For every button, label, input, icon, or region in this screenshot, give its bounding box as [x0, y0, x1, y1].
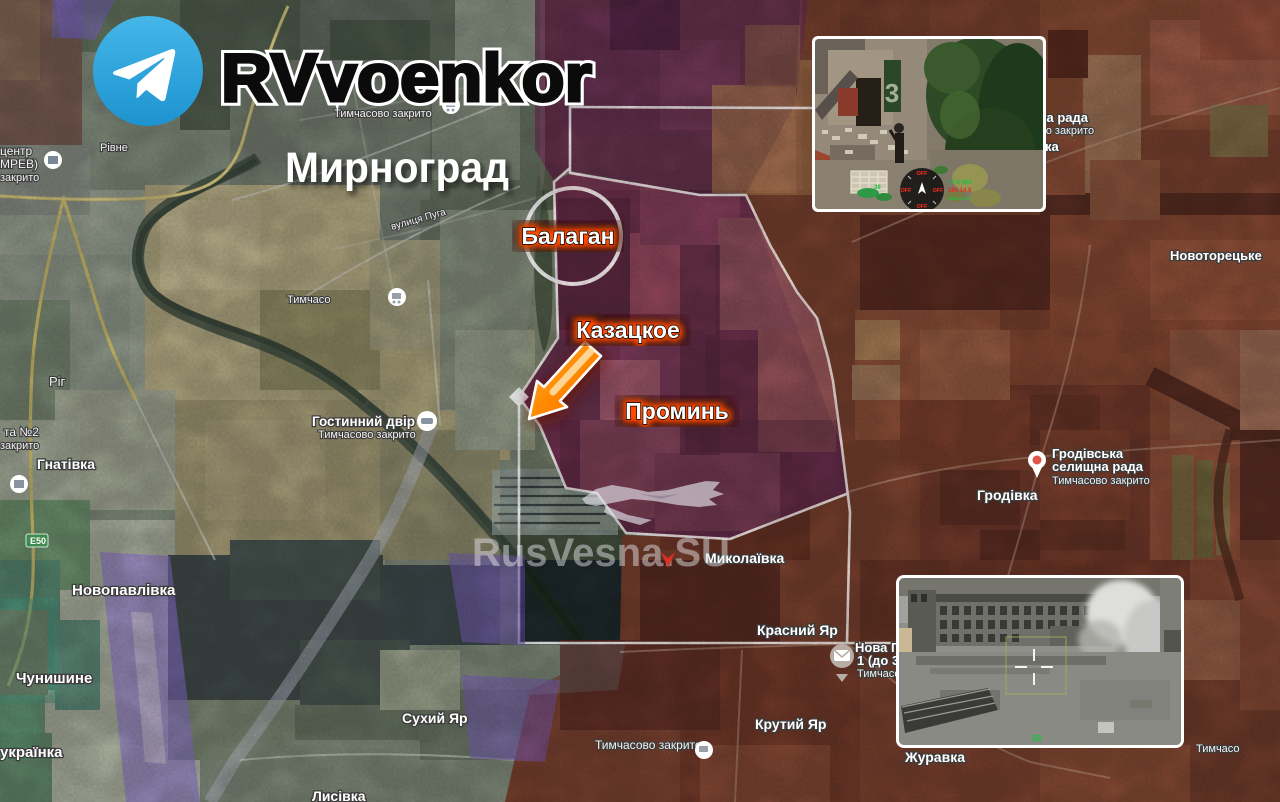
svg-text:3: 3: [885, 78, 899, 108]
svg-text:Рівне: Рівне: [100, 142, 128, 154]
svg-text:Тимчасо: Тимчасо: [287, 294, 331, 306]
svg-text:RusVesna.SU: RusVesna.SU: [472, 531, 730, 575]
svg-text:Ріг: Ріг: [49, 374, 66, 389]
svg-text:та №2: та №2: [4, 425, 39, 439]
svg-text:закрито: закрито: [0, 172, 39, 184]
svg-text:Тимчасо: Тимчасо: [1196, 743, 1240, 755]
svg-text:OFF: OFF: [933, 188, 945, 194]
svg-text:38: 38: [874, 185, 881, 191]
svg-text:Мирноград: Мирноград: [285, 144, 509, 192]
svg-text:Гостинний двір: Гостинний двір: [312, 414, 415, 429]
svg-text:ка рада: ка рада: [1040, 110, 1089, 125]
svg-text:Сухий Яр: Сухий Яр: [402, 710, 468, 726]
svg-text:Тимчасово закрито: Тимчасово закрито: [1052, 475, 1150, 487]
svg-text:Проминь: Проминь: [625, 398, 729, 424]
svg-text:185 14.8: 185 14.8: [948, 188, 972, 194]
svg-text:OFF: OFF: [901, 188, 913, 194]
svg-text:Лисівка: Лисівка: [312, 788, 366, 802]
svg-text:Казацкое: Казацкое: [576, 317, 680, 343]
svg-text:ЗВ: ЗВ: [1031, 734, 1042, 743]
svg-text:Гнатівка: Гнатівка: [37, 456, 95, 472]
svg-text:Чунишине: Чунишине: [16, 670, 92, 687]
svg-text:Новоторецьке: Новоторецьке: [1170, 248, 1262, 263]
svg-text:1 (до 3: 1 (до 3: [857, 653, 899, 668]
svg-text:Тимчасово закрито: Тимчасово закрито: [318, 429, 416, 441]
svg-text:Новопавлівка: Новопавлівка: [72, 582, 176, 599]
svg-text:во закрито: во закрито: [1040, 125, 1094, 137]
svg-text:Балаган: Балаган: [522, 223, 615, 249]
svg-text:закрито: закрито: [0, 440, 39, 452]
svg-text:OFF: OFF: [917, 171, 929, 177]
svg-text:центр: центр: [0, 144, 33, 158]
svg-text:RVvoenkor: RVvoenkor: [221, 40, 592, 116]
svg-text:Красний Яр: Красний Яр: [757, 622, 838, 638]
svg-text:Гродівка: Гродівка: [977, 487, 1038, 503]
svg-text:МРЕВ): МРЕВ): [0, 157, 38, 171]
svg-text:Журавка: Журавка: [904, 749, 965, 765]
svg-text:1228 8 ATL: 1228 8 ATL: [948, 196, 972, 201]
svg-text:Крутий Яр: Крутий Яр: [755, 716, 826, 732]
svg-text:Тимчасо: Тимчасо: [857, 668, 901, 680]
svg-text:Тимчасово закрито: Тимчасово закрито: [595, 738, 702, 752]
svg-text:селищна рада: селищна рада: [1052, 459, 1144, 474]
svg-text:+7.0 M/S: +7.0 M/S: [948, 180, 972, 186]
svg-text:E50: E50: [30, 536, 46, 546]
svg-text:українка: українка: [0, 744, 63, 761]
